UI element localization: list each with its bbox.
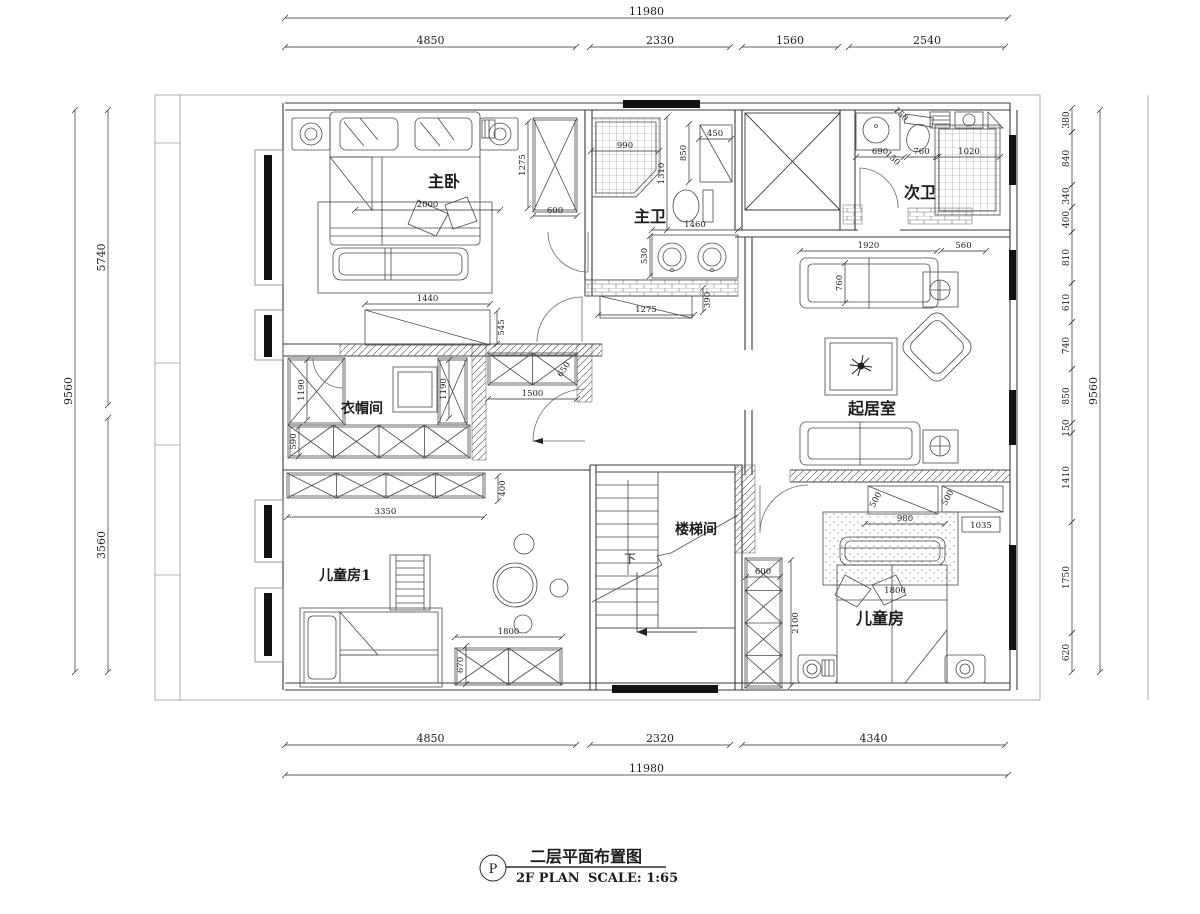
dim-label: 560 — [955, 241, 971, 251]
dim-label: 590 — [289, 433, 299, 449]
dim-label: 5740 — [95, 244, 108, 272]
floorplan-canvas: { "title_block": { "symbol": "P", "title… — [0, 0, 1200, 910]
dim-label: 3350 — [375, 507, 397, 517]
title-block: P 二层平面布置图 2F PLAN SCALE: 1:65 — [480, 847, 678, 886]
dim-label: 610 — [1062, 294, 1072, 311]
dim-label: 4850 — [417, 34, 445, 47]
dim-label: 600 — [547, 206, 563, 216]
dim-label: 400 — [1062, 211, 1072, 228]
dim-bath2-gap1: 150 — [891, 105, 910, 124]
dim-label: 2540 — [913, 34, 941, 47]
dim-kids2-bed: 1800 — [884, 586, 906, 596]
dim-label: 810 — [1062, 249, 1072, 266]
dim-label: 1750 — [1062, 566, 1072, 589]
label-stairwell: 楼梯间 — [675, 521, 717, 538]
dim-label: 690 — [872, 147, 888, 157]
dim-label: 850 — [679, 145, 689, 161]
dim-label: 1920 — [858, 241, 880, 251]
dim-label: 760 — [835, 275, 845, 291]
stair-closet — [745, 558, 782, 688]
dim-label: 450 — [707, 129, 723, 139]
dim-label: 4340 — [860, 732, 888, 745]
dim-label: 11980 — [629, 5, 664, 18]
dim-label: 1460 — [684, 220, 706, 230]
label-master-bedroom: 主卧 — [428, 172, 460, 191]
title-scale: SCALE: 1:65 — [588, 871, 678, 886]
dim-label: 990 — [617, 141, 633, 151]
dim-label: 3560 — [95, 531, 108, 559]
plant-icon — [850, 355, 872, 376]
closet-wardrobe-bottom — [288, 425, 470, 458]
room-master-bedroom — [292, 112, 518, 345]
dim-label: 600 — [755, 567, 771, 577]
label-living-room: 起居室 — [847, 399, 896, 418]
dim-label: 4850 — [417, 732, 445, 745]
label-second-bath: 次卫 — [904, 183, 936, 202]
dim-label: 400 — [498, 480, 508, 496]
label-closet: 衣帽间 — [341, 400, 383, 417]
dim-label: 980 — [897, 514, 913, 524]
room-kids1 — [300, 534, 568, 687]
dim-label: 1190 — [297, 379, 307, 401]
dim-label: 2320 — [646, 732, 674, 745]
dim-label: 760 — [913, 147, 929, 157]
dim-label: 1440 — [417, 294, 439, 304]
dim-label: 620 — [1062, 644, 1072, 661]
void-shaft — [745, 113, 840, 210]
dim-label: 545 — [497, 319, 507, 335]
title-symbol: P — [489, 862, 498, 877]
kids1-cabinet — [455, 648, 562, 685]
dim-label: 150 — [1062, 419, 1072, 436]
label-kids2: 儿童房 — [855, 609, 904, 628]
dim-label: 670 — [456, 657, 466, 673]
label-master-bath: 主卫 — [634, 207, 666, 226]
room-closet — [393, 367, 437, 412]
dim-label: 1275 — [635, 305, 657, 315]
dim-hall-cabinet-d: 650 — [556, 360, 574, 379]
dim-label: 1310 — [657, 163, 667, 185]
dim-kids2-cab1: 500 — [868, 491, 884, 510]
dim-label: 2000 — [417, 200, 439, 210]
room-stairwell — [592, 472, 738, 636]
dim-label: 1275 — [518, 154, 528, 176]
title-cn: 二层平面布置图 — [530, 847, 642, 866]
dim-label: 390 — [703, 292, 713, 308]
dim-label: 1410 — [1062, 466, 1072, 489]
room-living — [800, 258, 975, 465]
dim-label: 2100 — [791, 612, 801, 634]
dim-label: 840 — [1062, 150, 1072, 167]
dim-label: 1560 — [776, 34, 804, 47]
dim-label: 1500 — [522, 389, 544, 399]
dim-label: 740 — [1062, 337, 1072, 354]
dim-label: 2330 — [646, 34, 674, 47]
dim-label: 340 — [1062, 187, 1072, 204]
label-kids1: 儿童房1 — [318, 567, 371, 584]
dim-label: 1800 — [498, 627, 520, 637]
dim-label: 380 — [1062, 111, 1072, 128]
dim-label: 1020 — [958, 147, 980, 157]
dim-kids2-shelf: 1035 — [970, 521, 992, 531]
label-stairs-down: 下 — [624, 552, 636, 566]
title-en: 2F PLAN — [516, 871, 580, 886]
dim-label: 9560 — [62, 377, 75, 405]
mb-wardrobe — [533, 118, 577, 212]
kids1-closet-row — [287, 473, 485, 498]
floorplan-svg: 主卧 主卫 次卫 衣帽间 起居室 楼梯间 儿童房1 儿童房 下 150 150 … — [0, 0, 1200, 910]
dim-label: 530 — [640, 248, 650, 264]
dim-label: 9560 — [1087, 377, 1100, 405]
dim-label: 11980 — [629, 762, 664, 775]
dim-label: 850 — [1062, 387, 1072, 404]
dim-label: 1190 — [439, 378, 449, 400]
